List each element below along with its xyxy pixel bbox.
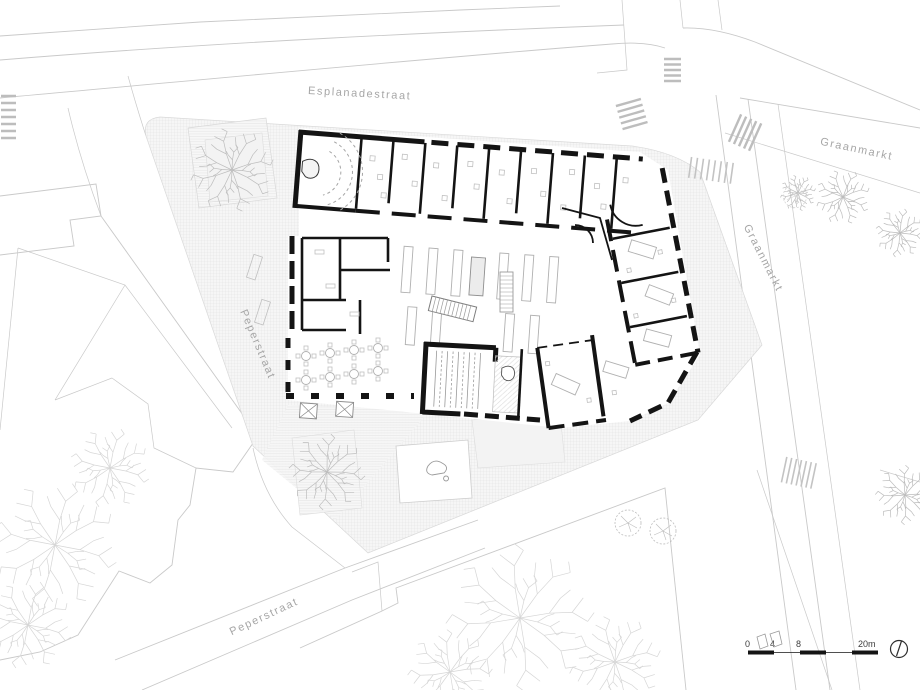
parking-stripes-east xyxy=(781,457,816,489)
scale-tick-20m: 20m xyxy=(858,639,876,649)
crosswalk-graanmarkt xyxy=(729,114,761,150)
site-plan-drawing: Esplanadestraat Graanmarkt Graanmarkt Pe… xyxy=(0,0,920,690)
school-building xyxy=(286,128,700,428)
tree-graanmarkt-1 xyxy=(779,174,816,211)
crosswalk-esplanade xyxy=(616,99,648,129)
tree-garden-3 xyxy=(567,614,663,690)
crosswalk-north xyxy=(664,59,681,81)
scale-tick-4: 4 xyxy=(770,639,775,649)
tree-graanmarkt-2 xyxy=(803,157,883,237)
north-arrow-icon xyxy=(891,641,908,658)
scale-tick-8: 8 xyxy=(796,639,801,649)
stair-secondary xyxy=(500,272,513,312)
crosswalk-left xyxy=(1,96,16,138)
street-label-peperstraat-lower: Peperstraat xyxy=(228,596,301,638)
tree-graanmarkt-3 xyxy=(868,201,920,266)
tree-round-1 xyxy=(615,510,641,536)
street-label-graanmarkt-street: Graanmarkt xyxy=(741,223,785,294)
floor-plan-canvas: Esplanadestraat Graanmarkt Graanmarkt Pe… xyxy=(0,0,920,690)
tree-garden-large xyxy=(431,529,609,690)
street-label-graanmarkt-square: Graanmarkt xyxy=(819,136,894,163)
tree-round-2 xyxy=(650,518,676,544)
scale-tick-0: 0 xyxy=(745,639,750,649)
tree-west-2 xyxy=(59,417,161,519)
scale-figure-1 xyxy=(757,634,768,649)
street-label-esplanadestraat: Esplanadestraat xyxy=(308,85,412,102)
tree-east xyxy=(867,457,920,532)
scale-bar: 0 4 8 20m xyxy=(745,631,878,655)
